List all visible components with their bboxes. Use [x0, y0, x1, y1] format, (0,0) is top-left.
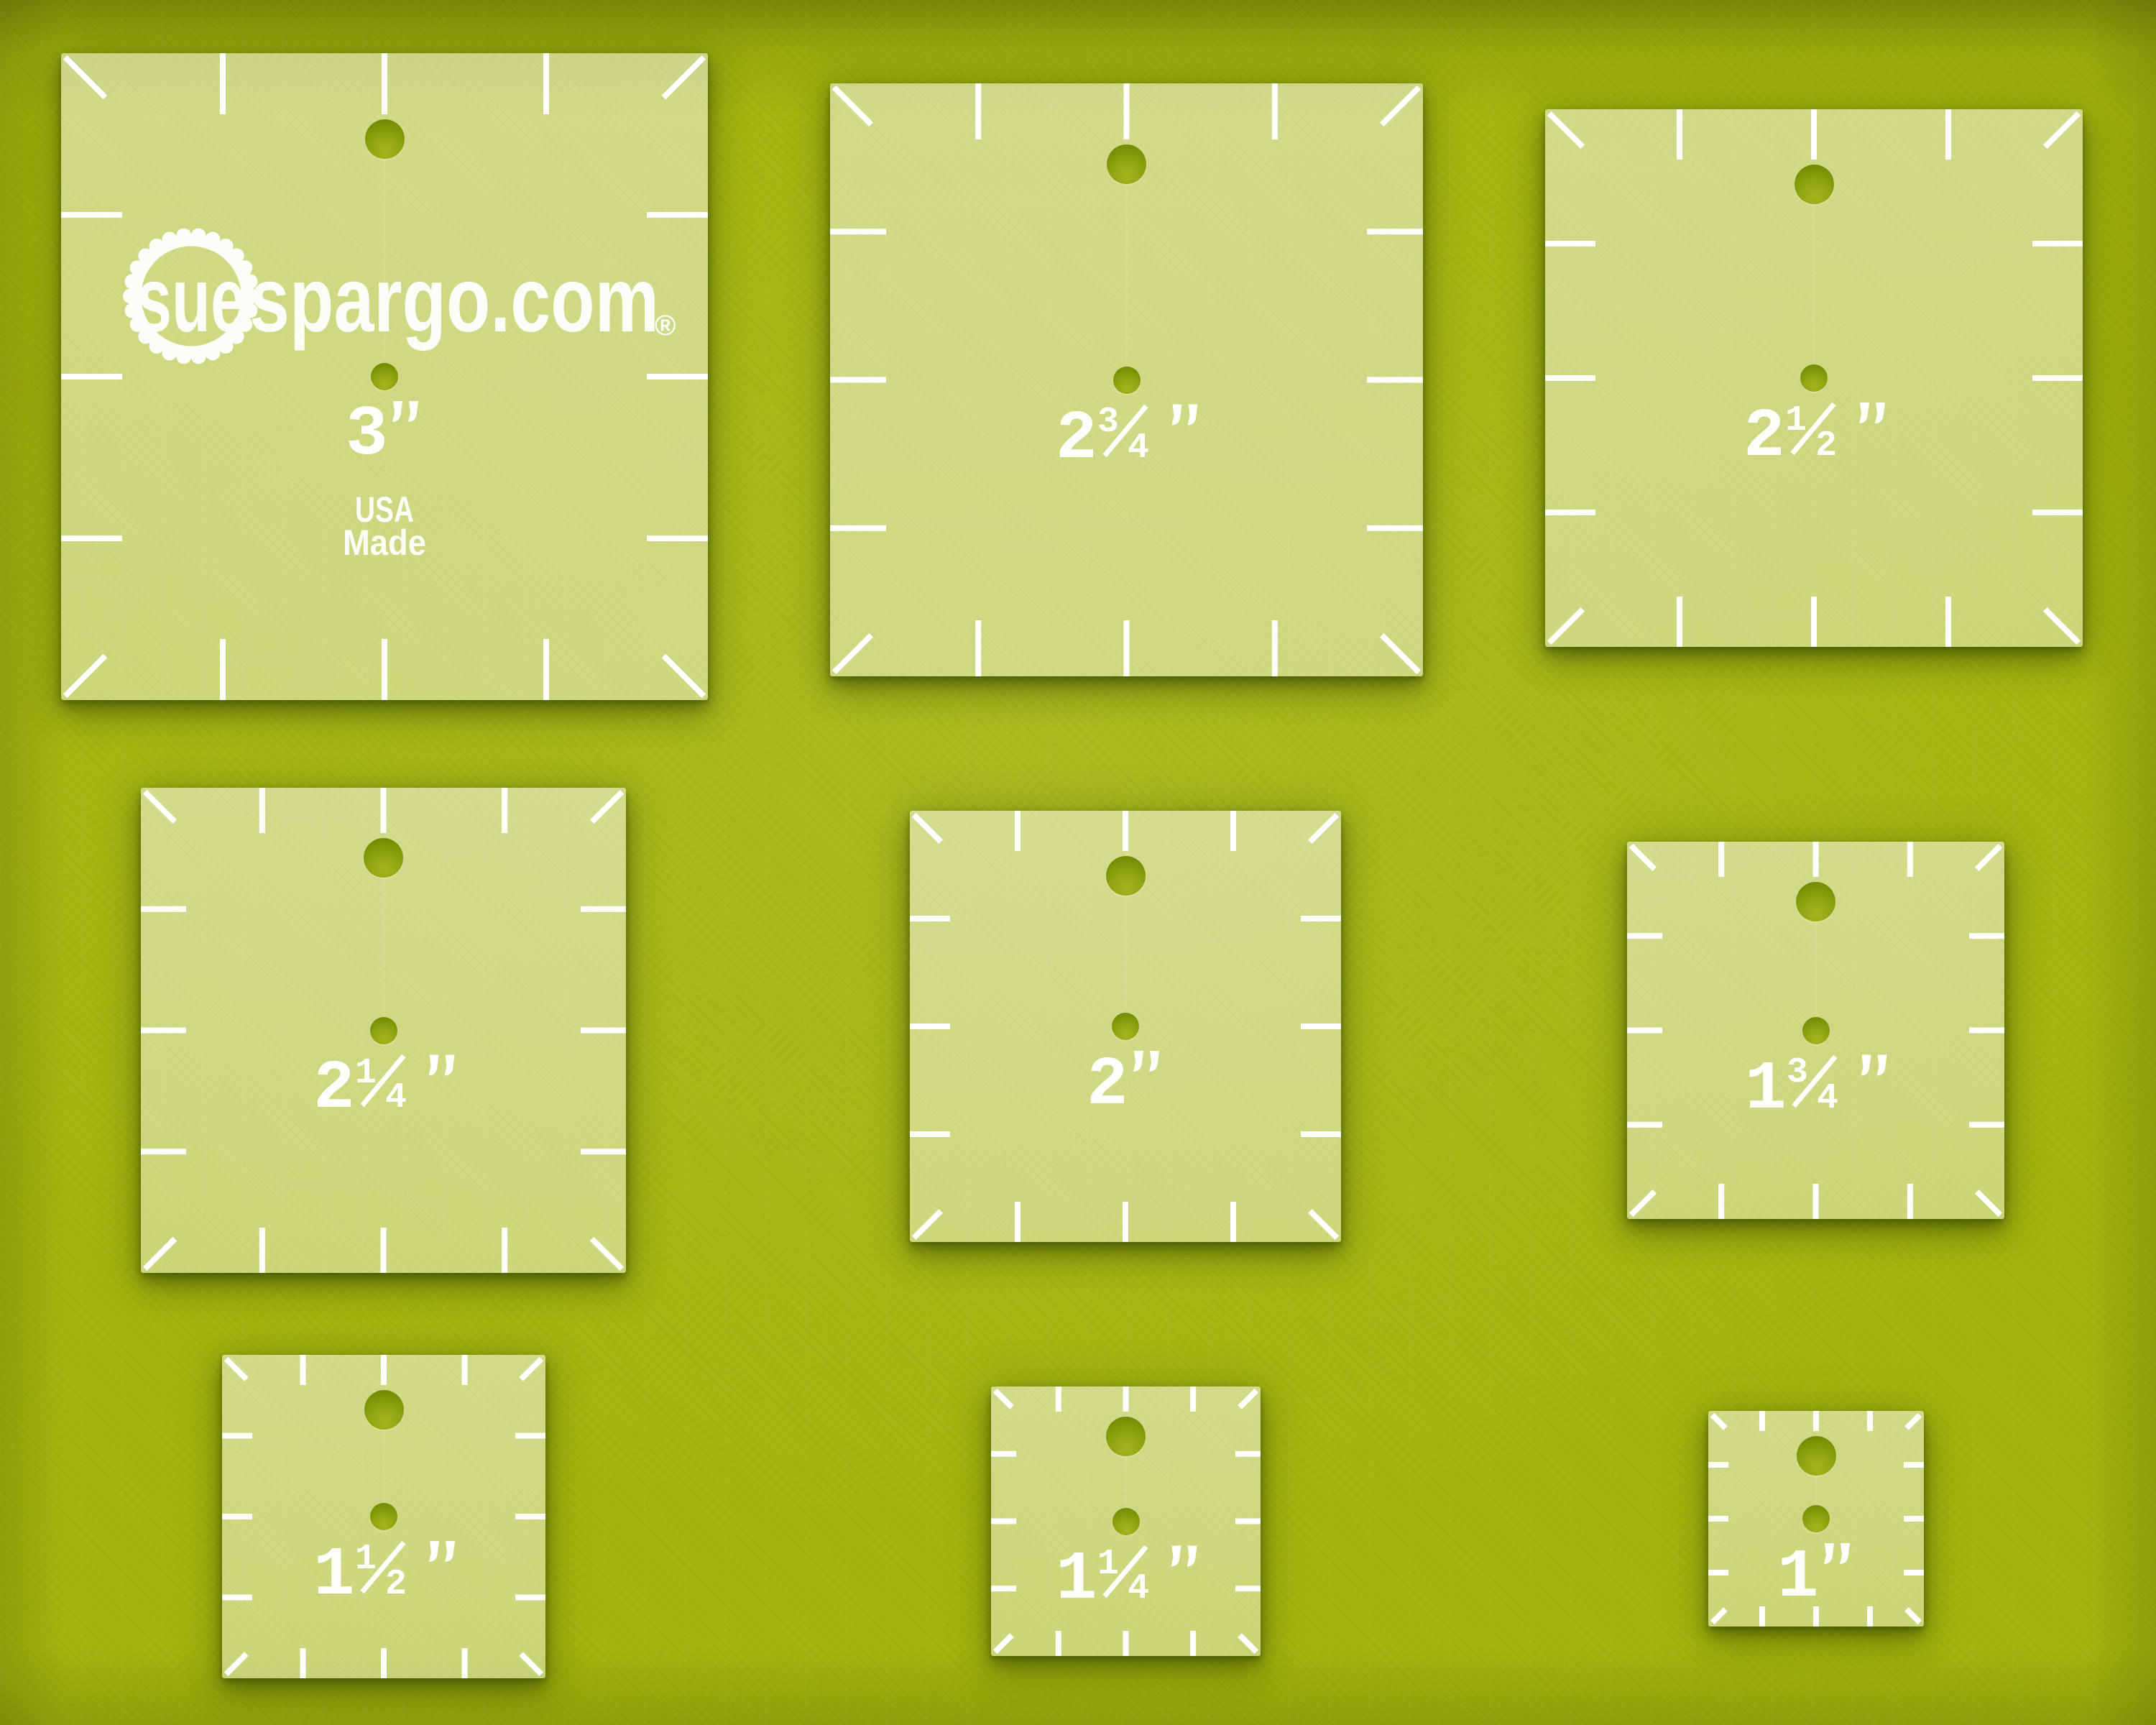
- svg-text:1: 1: [355, 1539, 377, 1580]
- svg-text:1: 1: [1056, 1540, 1097, 1619]
- svg-text:2: 2: [385, 1564, 407, 1605]
- svg-text:3: 3: [1097, 402, 1119, 443]
- svg-text:3: 3: [346, 395, 388, 475]
- svg-text:4: 4: [385, 1077, 407, 1118]
- svg-text:4: 4: [1128, 428, 1149, 469]
- svg-text:Made: Made: [343, 523, 426, 563]
- svg-text:4: 4: [1128, 1568, 1149, 1609]
- svg-text:1: 1: [1777, 1538, 1819, 1616]
- svg-text:sue: sue: [137, 249, 246, 351]
- svg-text:1: 1: [1745, 1050, 1787, 1128]
- svg-text:2: 2: [1087, 1046, 1128, 1124]
- svg-text:3: 3: [1787, 1052, 1808, 1093]
- svg-text:2: 2: [1743, 397, 1785, 476]
- svg-text:1: 1: [1097, 1544, 1119, 1585]
- svg-text:4: 4: [1817, 1078, 1838, 1119]
- svg-text:1: 1: [355, 1053, 377, 1094]
- svg-text:2: 2: [1056, 400, 1097, 478]
- svg-text:1: 1: [1785, 400, 1807, 441]
- svg-text:1: 1: [313, 1536, 355, 1614]
- svg-text:spargo.com: spargo.com: [249, 249, 659, 351]
- svg-text:2: 2: [313, 1049, 355, 1128]
- svg-text:®: ®: [655, 310, 676, 341]
- svg-text:2: 2: [1815, 425, 1837, 466]
